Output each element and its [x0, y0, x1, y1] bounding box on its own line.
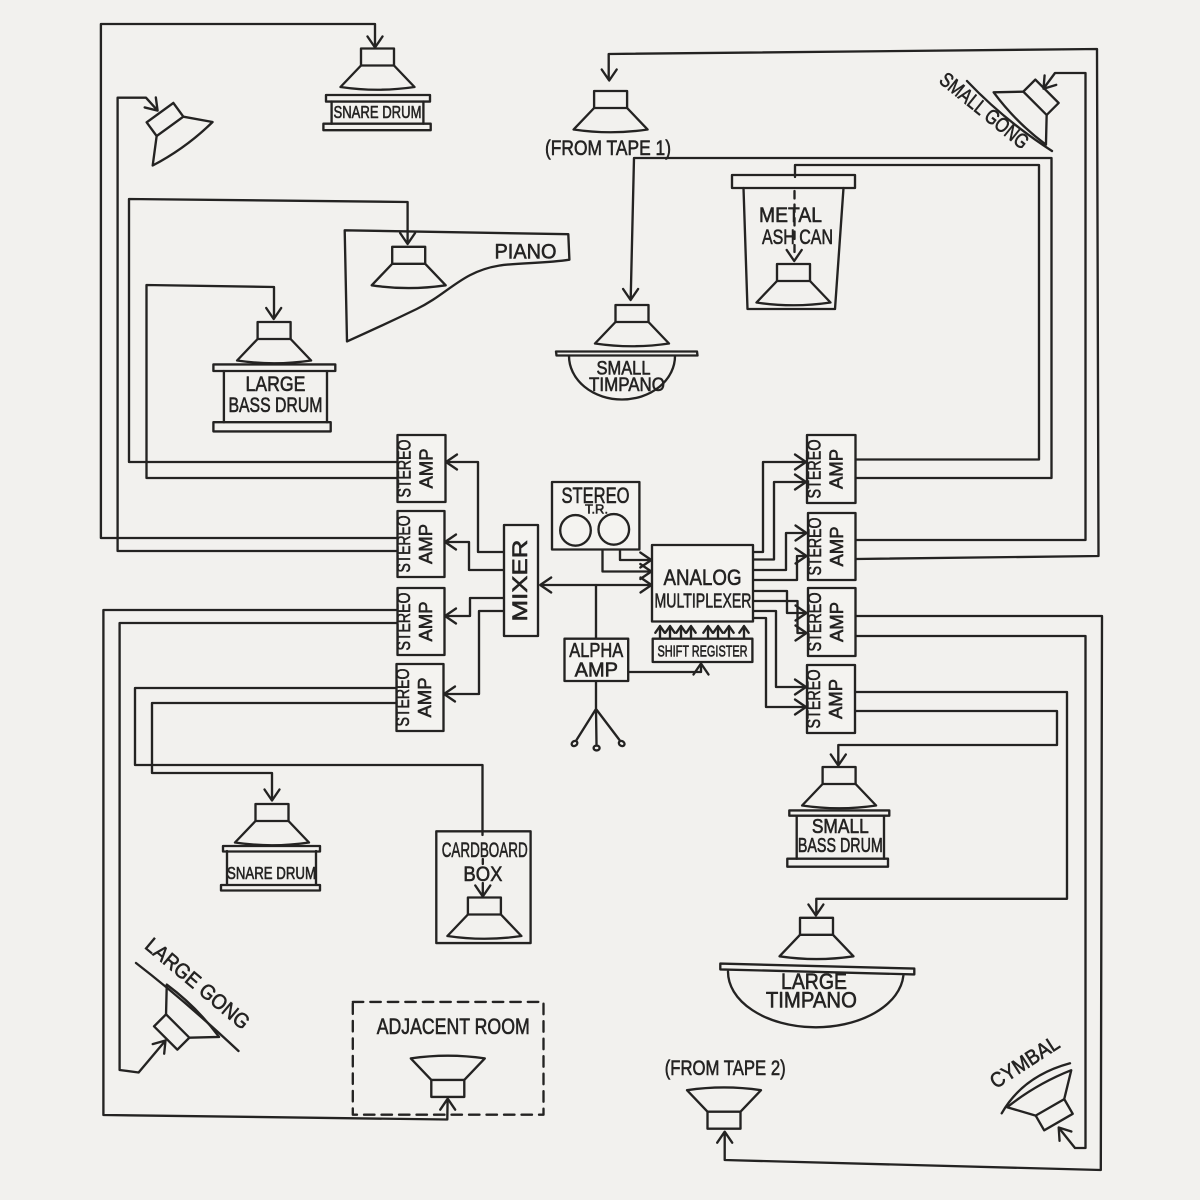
svg-text:AMP: AMP [825, 679, 846, 719]
svg-text:ADJACENT ROOM: ADJACENT ROOM [377, 1014, 530, 1039]
svg-text:BOX: BOX [463, 863, 502, 886]
svg-text:METAL: METAL [759, 204, 822, 227]
svg-text:AMP: AMP [826, 602, 847, 642]
svg-text:T.R.: T.R. [585, 502, 608, 517]
svg-text:BASS DRUM: BASS DRUM [228, 394, 322, 417]
svg-text:STEREO: STEREO [803, 670, 824, 729]
svg-text:STEREO: STEREO [393, 593, 414, 651]
svg-text:MIXER: MIXER [509, 540, 532, 622]
svg-text:STEREO: STEREO [394, 440, 415, 498]
svg-text:AMP: AMP [415, 601, 436, 641]
svg-text:STEREO: STEREO [393, 516, 414, 573]
svg-text:ASH CAN: ASH CAN [762, 226, 833, 249]
svg-text:STEREO: STEREO [804, 593, 825, 652]
svg-text:CARDBOARD: CARDBOARD [442, 839, 528, 862]
svg-text:PIANO: PIANO [495, 240, 557, 264]
svg-text:ANALOG: ANALOG [664, 565, 742, 590]
svg-text:AMP: AMP [416, 448, 437, 488]
svg-text:AMP: AMP [414, 677, 435, 717]
svg-text:TIMPANO: TIMPANO [589, 375, 665, 396]
svg-text:(FROM TAPE 2): (FROM TAPE 2) [665, 1056, 786, 1080]
svg-text:BASS DRUM: BASS DRUM [798, 835, 883, 857]
svg-text:AMP: AMP [826, 526, 847, 566]
svg-text:MULTIPLEXER: MULTIPLEXER [655, 591, 752, 613]
svg-text:TIMPANO: TIMPANO [766, 988, 857, 1013]
svg-text:STEREO: STEREO [392, 669, 413, 727]
svg-text:LARGE: LARGE [245, 373, 305, 396]
svg-text:AMP: AMP [575, 660, 618, 682]
svg-text:AMP: AMP [825, 449, 846, 489]
svg-text:STEREO: STEREO [804, 518, 825, 576]
svg-text:AMP: AMP [415, 524, 436, 564]
svg-text:SHIFT REGISTER: SHIFT REGISTER [658, 644, 748, 661]
svg-text:(FROM TAPE 1): (FROM TAPE 1) [545, 136, 671, 160]
svg-text:STEREO: STEREO [803, 440, 824, 499]
svg-text:SNARE DRUM: SNARE DRUM [227, 863, 316, 883]
svg-text:SNARE DRUM: SNARE DRUM [334, 102, 422, 122]
